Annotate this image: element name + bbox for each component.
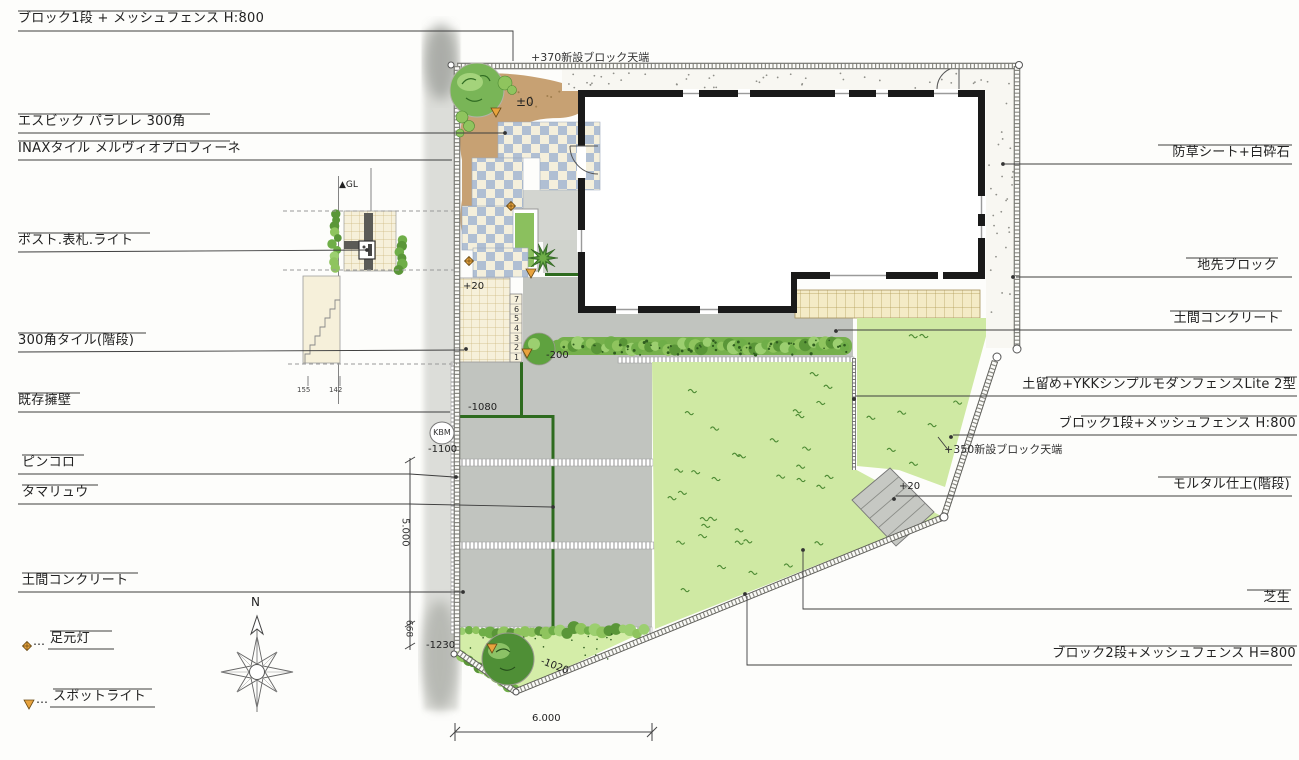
label-tamaryu: タマリュウ (22, 486, 89, 501)
fence-post-marker (1016, 62, 1023, 69)
leader-line (18, 474, 454, 477)
gravel-speckle (777, 77, 779, 79)
fence-post-marker (451, 651, 457, 657)
dim-left-lower: 668 (403, 620, 413, 637)
gravel-speckle (805, 77, 807, 79)
leader-dot (834, 329, 838, 333)
leader-dot (461, 590, 465, 594)
hedge-speck (626, 345, 629, 348)
leader-dot (365, 248, 369, 252)
bed-shrub (465, 626, 473, 634)
gravel-speckle (987, 81, 989, 83)
leader-line (18, 250, 366, 252)
label-doma-concrete-right: 土間コンクリート (1174, 312, 1280, 327)
gravel-speckle (950, 82, 952, 84)
gravel-speckle (1009, 147, 1011, 149)
hedge-speck (810, 352, 813, 355)
hedge-speck (602, 351, 604, 353)
leader-line (18, 350, 464, 352)
hedge-speck (769, 345, 771, 347)
bed-speck (571, 639, 573, 641)
hedge-speck (645, 340, 648, 343)
gravel-speckle (864, 76, 866, 78)
hedge-speck (681, 350, 684, 353)
compass-north-label: N (251, 596, 260, 610)
hedge-speck (690, 350, 693, 353)
soil-speck (535, 106, 537, 108)
compass-rose (221, 616, 293, 712)
leader-dot (801, 548, 805, 552)
hedge-speck (770, 343, 773, 346)
hedge-speck (839, 345, 841, 347)
gravel-speckle (1009, 293, 1011, 295)
hedge-speck (754, 353, 757, 356)
gravel-speckle (1011, 184, 1013, 186)
gravel-speckle (713, 75, 715, 77)
gravel-speckle (613, 73, 615, 75)
hedge-speck (700, 346, 702, 348)
hedge-speck (790, 342, 792, 344)
gravel-speckle (608, 83, 610, 85)
hedge-speck (812, 344, 815, 347)
gravel-speckle (993, 225, 995, 227)
leader-dot (1011, 275, 1015, 279)
step-number: 3 (511, 334, 522, 343)
gravel-speckle (998, 144, 1000, 146)
hedge-speck (581, 345, 584, 348)
leader-dot (949, 435, 953, 439)
hedge-speck (776, 341, 779, 344)
bed-speck (583, 647, 585, 649)
label-ykk-fence: 土留め+YKKシンプルモダンフェンスLite 2型 (1022, 378, 1296, 393)
gravel-speckle (1000, 211, 1002, 213)
step-number: 7 (511, 295, 522, 304)
step-number: 1 (511, 353, 522, 362)
gravel-speckle (1008, 227, 1010, 229)
hedge-speck (738, 346, 741, 349)
bed-speck (534, 638, 536, 640)
pincoro-band (455, 542, 655, 549)
leader-dot (892, 497, 896, 501)
hedge-speck (670, 345, 672, 347)
gravel-speckle (713, 87, 715, 89)
leader-dot (1001, 162, 1005, 166)
gravel-speckle (759, 81, 761, 83)
label-inax-tile: INAXタイル メルヴィオプロフィーネ (18, 142, 241, 157)
gravel-speckle (600, 76, 602, 78)
bed-speck (606, 637, 608, 639)
leader-line (803, 552, 1292, 609)
entrance-detail-inset (303, 168, 408, 404)
lawn-right-strip (857, 318, 991, 487)
foot-light-icon (465, 257, 474, 266)
label-edge-block: 地先ブロック (1197, 259, 1277, 274)
legend-dots: … (36, 693, 48, 707)
foot-light-icon (23, 642, 32, 651)
label-block2-mesh-fence: ブロック2段+メッシュフェンス H=800 (1052, 647, 1296, 662)
note-top-block-wall: +370新設ブロック天端 (531, 52, 649, 65)
leader-dot (852, 397, 856, 401)
gravel-speckle (573, 87, 575, 89)
hedge-speck (748, 342, 750, 344)
spotlight-icon (24, 700, 34, 709)
inset-stairs (303, 276, 340, 363)
gravel-speckle (941, 79, 943, 81)
hedge-speck (712, 339, 715, 342)
gravel-speckle (992, 215, 994, 217)
leader-dot (551, 505, 555, 509)
bed-speck (470, 647, 472, 649)
hedge-speck (746, 347, 748, 349)
gravel-speckle (1005, 247, 1007, 249)
gravel-speckle (929, 81, 931, 83)
hedge-speck (573, 343, 575, 345)
level-bed: -1230 (426, 640, 455, 652)
bed-shrub (639, 624, 650, 635)
foot-light-icon (465, 257, 474, 266)
gravel-speckle (1005, 200, 1007, 202)
bed-speck (607, 658, 609, 660)
hedge-speck (737, 341, 740, 344)
gravel-speckle (980, 79, 982, 81)
bed-speck (584, 654, 586, 656)
gravel-speckle (879, 80, 881, 82)
hedge-speck (621, 351, 623, 353)
gravel-speckle (974, 81, 976, 83)
gravel-speckle (1006, 103, 1008, 105)
gravel-speckle (995, 256, 997, 258)
label-block1-mesh-fence: ブロック1段 + メッシュフェンス H:800 (18, 12, 264, 27)
hedge-speck (791, 353, 793, 355)
gravel-speckle (840, 73, 842, 75)
hedge-speck (659, 347, 661, 349)
gravel-speckle (572, 73, 574, 75)
gravel-speckle (590, 84, 592, 86)
level-tile-steps: +20 (463, 281, 484, 293)
gravel-speckle (1006, 198, 1008, 200)
gravel-speckle (801, 84, 803, 86)
gravel-speckle (591, 82, 593, 84)
hedge-speck (715, 349, 718, 352)
hedge-speck (828, 340, 830, 342)
bed-speck (596, 648, 598, 650)
gravel-speckle (715, 86, 717, 88)
hedge-speck (740, 349, 742, 351)
gravel-speckle (593, 75, 595, 77)
lawn-areas (652, 318, 991, 629)
hedge-speck (714, 341, 716, 343)
gravel-speckle (686, 78, 688, 80)
gravel-speckle (644, 73, 646, 75)
gravel-speckle (991, 311, 993, 313)
gravel-speckle (1001, 176, 1003, 178)
gravel-speckle (762, 77, 764, 79)
fence-post-marker (448, 62, 454, 68)
hedge-speck (843, 344, 846, 347)
gravel-speckle (1001, 292, 1003, 294)
gravel-speckle (988, 164, 990, 166)
hedge-speck (845, 351, 847, 353)
gravel-speckle (996, 232, 998, 234)
edge-block-band (795, 290, 980, 318)
gravel-speckle (688, 74, 690, 76)
bed-speck (610, 639, 612, 641)
fence-post-marker (940, 513, 948, 521)
hedge-plant (591, 343, 603, 355)
gravel-speckle (1002, 138, 1004, 140)
note-right-block-wall: +350新設ブロック天端 (944, 444, 1062, 457)
hedge-speck (749, 346, 752, 349)
legend-spotlight: スポットライト (53, 690, 146, 705)
level-kbm: -1100 (428, 444, 457, 456)
gravel-speckle (756, 80, 758, 82)
label-block1-mesh-fence-right: ブロック1段+メッシュフェンス H:800 (1059, 417, 1296, 432)
hedge-plant (840, 342, 850, 352)
step-number: 4 (511, 324, 522, 333)
label-existing-wall: 既存擁壁 (18, 394, 71, 409)
gravel-speckle (990, 188, 992, 190)
hedge-speck (788, 342, 790, 344)
level-drive-upper: -1080 (468, 402, 497, 414)
level-mortar-steps: +20 (899, 481, 920, 493)
leader-dot (464, 347, 468, 351)
leader-dot (743, 592, 747, 596)
gravel-speckle (628, 72, 630, 74)
hedge-speck (677, 353, 680, 356)
soil-speck (518, 91, 520, 93)
soil-speck (558, 91, 560, 93)
leader-dot (454, 475, 458, 479)
inset-dim-b: 142 (329, 386, 342, 394)
gravel-speckle (842, 79, 844, 81)
gravel-speckle (990, 269, 992, 271)
fence-post-marker (1013, 345, 1021, 353)
bed-speck (482, 637, 484, 639)
gravel-speckle (995, 194, 997, 196)
pincoro-band (455, 459, 653, 466)
label-doma-concrete-left: 土間コンクリート (22, 574, 128, 589)
label-300-tile-stairs: 300角タイル(階段) (18, 334, 134, 349)
gravel-speckle (955, 73, 957, 75)
gravel-speckle (1001, 131, 1003, 133)
hedge-speck (667, 351, 670, 354)
level-entry: ±0 (516, 96, 534, 110)
gravel-speckle (1008, 83, 1010, 85)
hedge-speck (650, 344, 652, 346)
label-weed-sheet-gravel: 防草シート+白砕石 (1172, 146, 1290, 161)
hedge-speck (712, 345, 714, 347)
label-lawn: 芝生 (1263, 591, 1290, 606)
inset-dim-a: 155 (297, 386, 310, 394)
bed-speck (540, 634, 542, 636)
gravel-speckle (1008, 231, 1010, 233)
hedge-speck (562, 346, 565, 349)
gravel-speckle (708, 77, 710, 79)
legend-dots: … (33, 635, 45, 649)
step-number: 2 (511, 343, 522, 352)
garden-plan-canvas: ブロック1段 + メッシュフェンス H:800 エスビック パラレレ 300角 … (0, 0, 1299, 760)
hedge-speck (823, 347, 825, 349)
gravel-speckle (586, 82, 588, 84)
gravel-speckle (568, 83, 570, 85)
dim-left-main: 5.000 (399, 518, 411, 547)
gravel-speckle (704, 87, 706, 89)
hedge-speck (619, 344, 622, 347)
hedge-row (551, 336, 852, 356)
gravel-speckle (676, 84, 678, 86)
bed-speck (588, 636, 590, 638)
hedge-speck (627, 348, 629, 350)
gravel-speckle (790, 73, 792, 75)
hedge-speck (613, 352, 616, 355)
hedge-speck (667, 346, 669, 348)
hedge-speck (633, 349, 636, 352)
hedge-speck (793, 343, 795, 345)
hedge-speck (815, 340, 817, 342)
hedge-speck (594, 345, 596, 347)
soil-speck (546, 95, 548, 97)
bed-speck (543, 646, 545, 648)
gravel-speckle (620, 79, 622, 81)
gravel-speckle (766, 74, 768, 76)
label-post-nameplate-light: ポスト.表札.ライト (18, 234, 133, 249)
hedge-speck (804, 341, 806, 343)
inset-greenery (331, 263, 340, 272)
hedge-speck (732, 345, 734, 347)
label-esbic-paving: エスビック パラレレ 300角 (18, 115, 186, 130)
hedge-speck (768, 348, 770, 350)
symbol-tree-bed (482, 633, 534, 685)
house-floorplate (578, 90, 985, 313)
bed-speck (596, 639, 598, 641)
fence-post-marker (993, 353, 1001, 361)
kbm-benchmark-text: KBM (430, 428, 454, 437)
fence-post-marker (513, 689, 519, 695)
bed-speck (611, 633, 613, 635)
dim-bottom: 6.000 (532, 713, 561, 725)
step-number: 6 (511, 305, 522, 314)
gravel-speckle (1012, 171, 1014, 173)
level-hedge: -200 (546, 350, 569, 362)
label-pincoro: ピンコロ (22, 456, 75, 471)
gravel-speckle (914, 87, 916, 89)
gravel-speckle (1011, 176, 1013, 178)
hedge-speck (739, 352, 742, 355)
soil-speck (550, 96, 552, 98)
label-mortar-stairs: モルタル仕上(階段) (1173, 478, 1290, 493)
leader-dot (503, 131, 507, 135)
hedge-speck (639, 354, 641, 356)
gl-marker: ▲GL (339, 180, 358, 190)
hedge-speck (696, 347, 698, 349)
foot-light-icon (23, 642, 32, 651)
legend-foot-light: 足元灯 (50, 632, 90, 647)
step-number: 5 (511, 314, 522, 323)
